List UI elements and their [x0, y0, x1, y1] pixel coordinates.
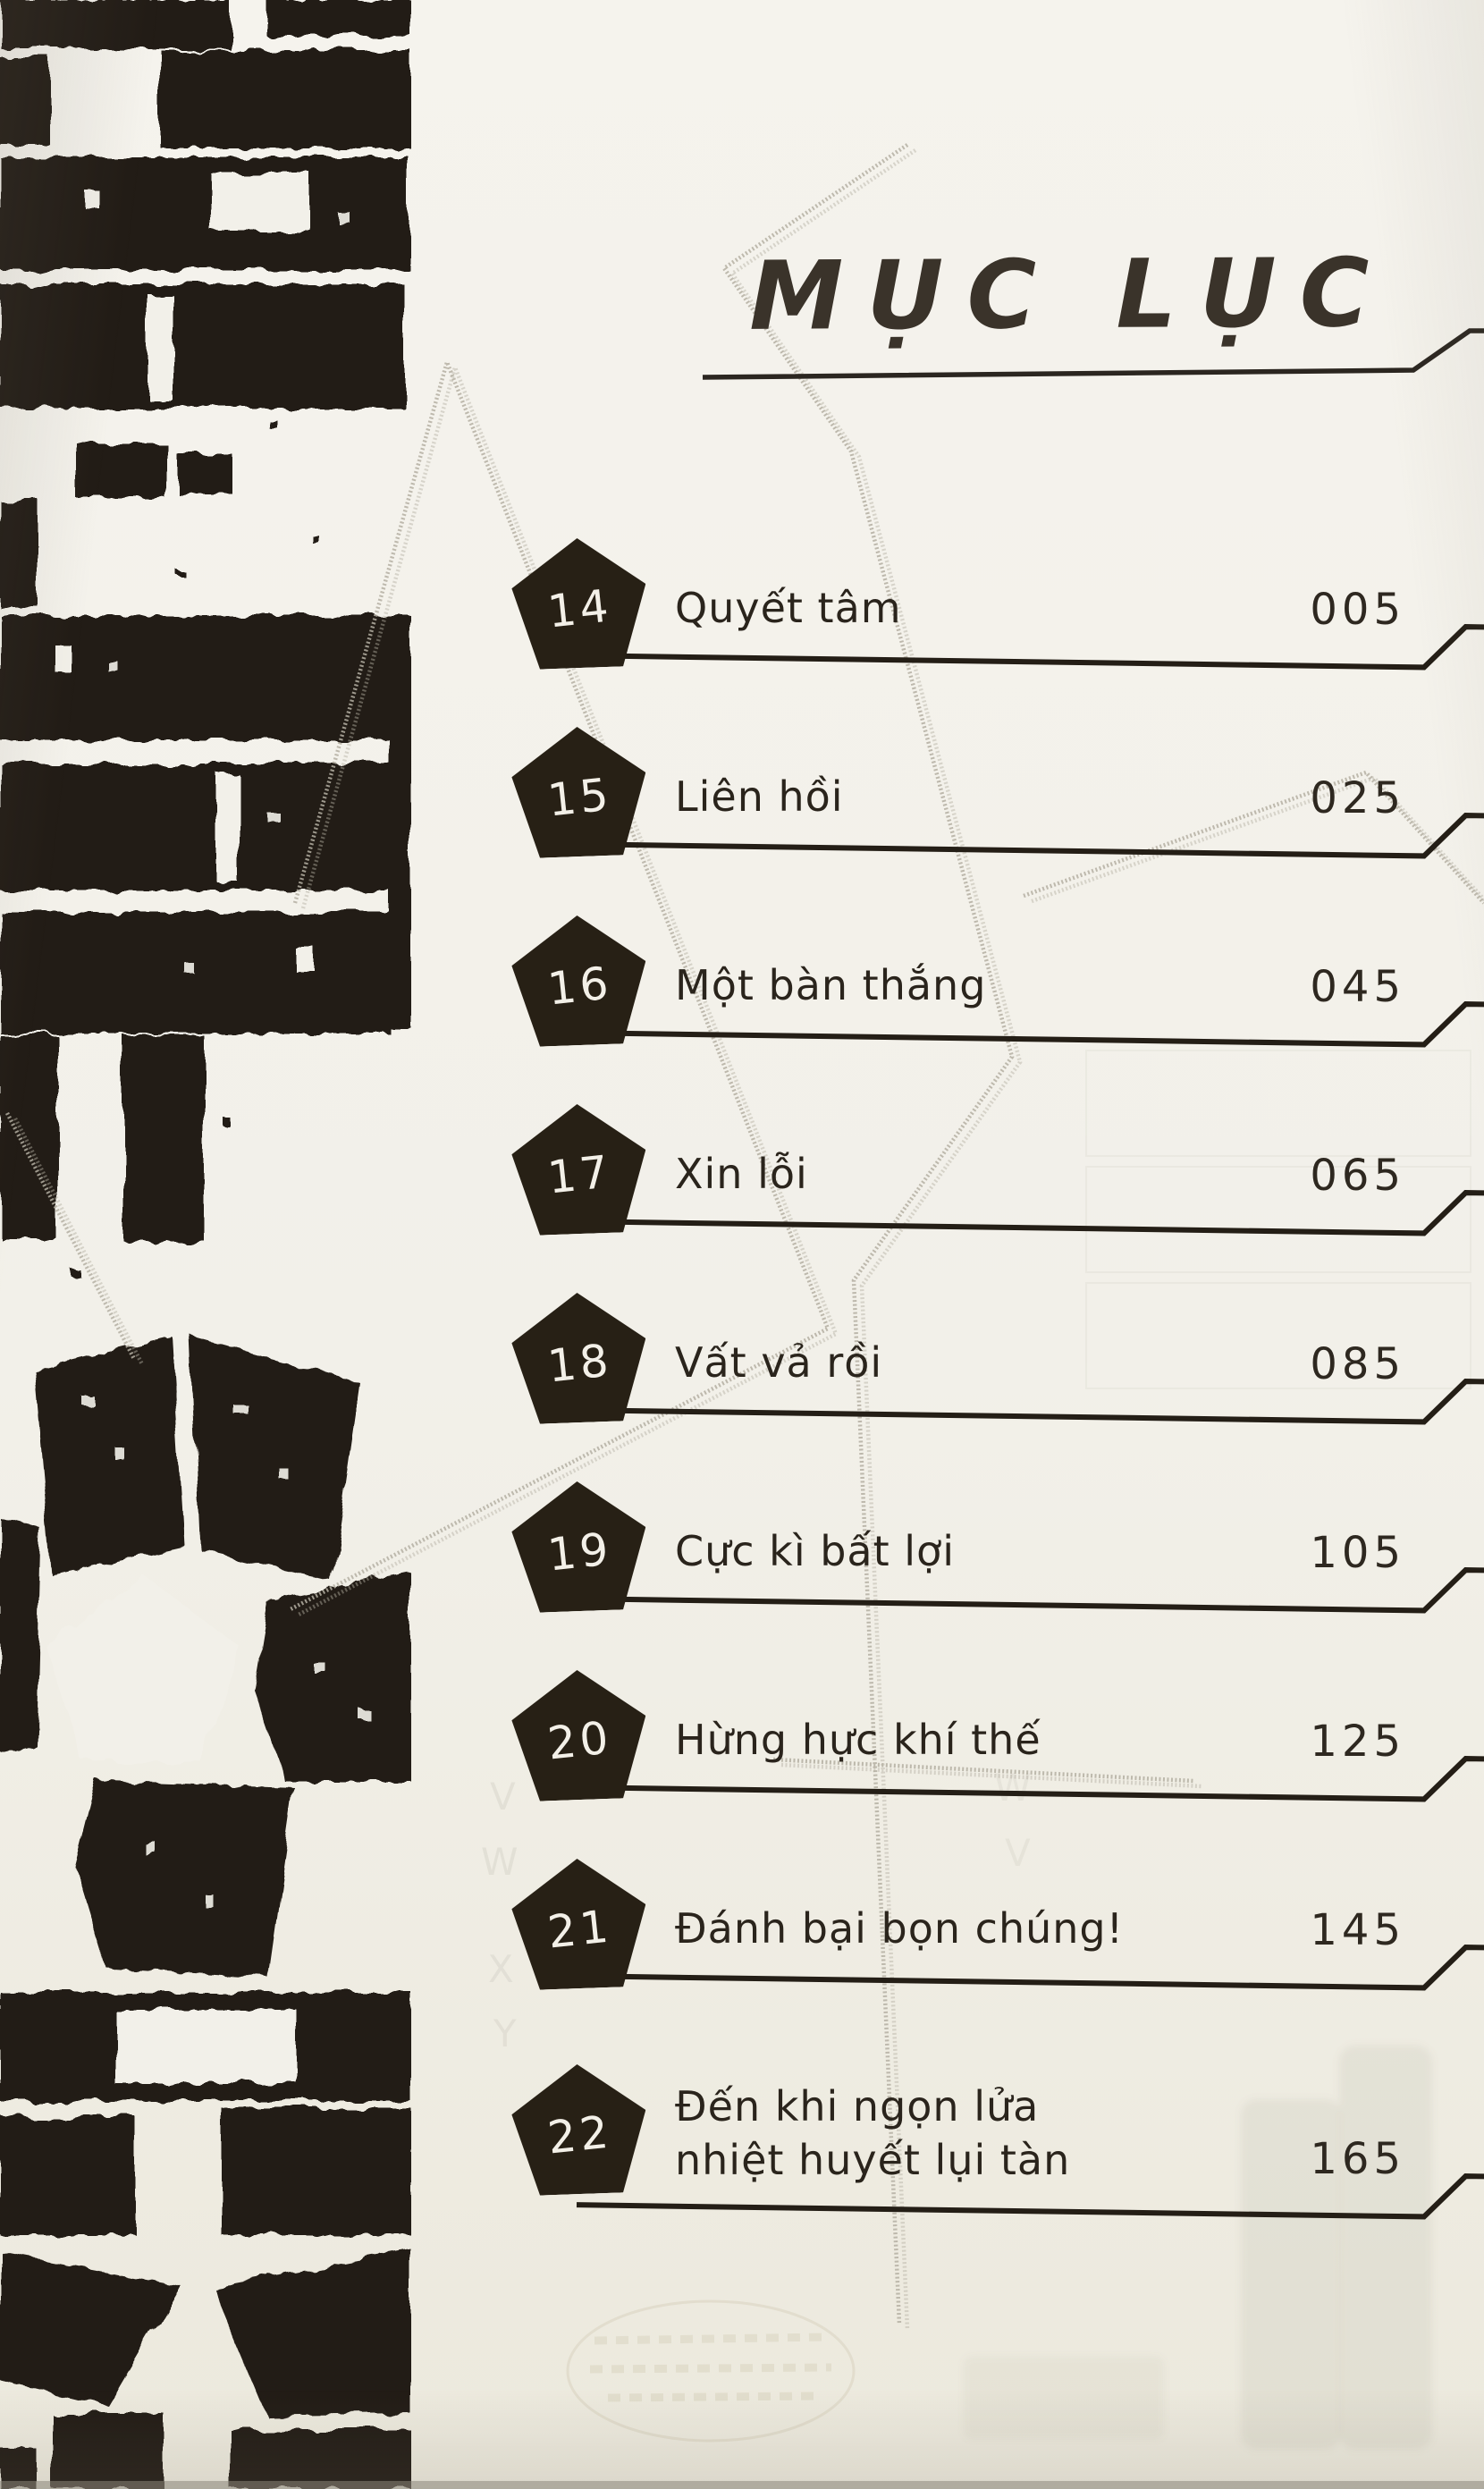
- toc-entry: 22 Đến khi ngọn lửanhiệt huyết lụi tàn 1…: [0, 2030, 1484, 2256]
- scan-edge: [0, 2481, 1484, 2489]
- chapter-number: 20: [544, 1700, 615, 1769]
- page-number: 065: [1207, 1154, 1405, 1197]
- page-number: 165: [1207, 2138, 1405, 2181]
- chapter-number: 18: [544, 1323, 615, 1392]
- chapter-title: Xin lỗi: [675, 1111, 808, 1236]
- chapter-title: Cực kì bất lợi: [675, 1489, 955, 1614]
- chapter-number: 16: [544, 946, 615, 1015]
- title-underline: [626, 304, 1484, 411]
- page-number: 145: [1207, 1909, 1405, 1952]
- chapter-number: 17: [544, 1135, 615, 1203]
- chapter-title: Một bàn thắng: [675, 923, 986, 1048]
- chapter-number: 22: [544, 2095, 615, 2164]
- toc-page: V W X Y W V MỤC LỤC 14 Quyết tâm 005 15 …: [0, 0, 1484, 2489]
- ghost-stamp: [568, 2301, 854, 2441]
- page-number: 105: [1207, 1531, 1405, 1574]
- chapter-title: Liên hồi: [675, 734, 844, 859]
- chapter-title: Hừng hực khí thế: [675, 1677, 1041, 1802]
- chapter-number: 14: [544, 569, 615, 637]
- chapter-title: Đến khi ngọn lửanhiệt huyết lụi tàn: [675, 2057, 1070, 2209]
- chapter-title: Đánh bại bọn chúng!: [675, 1866, 1124, 1991]
- page-number: 025: [1207, 777, 1405, 820]
- chapter-number: 19: [544, 1512, 615, 1581]
- toc-entry: 21 Đánh bại bọn chúng! 145: [0, 1830, 1484, 2055]
- page-number: 005: [1207, 588, 1405, 631]
- chapter-number: 21: [544, 1889, 615, 1958]
- page-number: 085: [1207, 1343, 1405, 1386]
- page-number: 045: [1207, 966, 1405, 1008]
- page-number: 125: [1207, 1720, 1405, 1763]
- chapter-title: Vất vả rồi: [675, 1300, 882, 1425]
- chapter-number: 15: [544, 757, 615, 826]
- chapter-title: Quyết tâm: [675, 545, 902, 671]
